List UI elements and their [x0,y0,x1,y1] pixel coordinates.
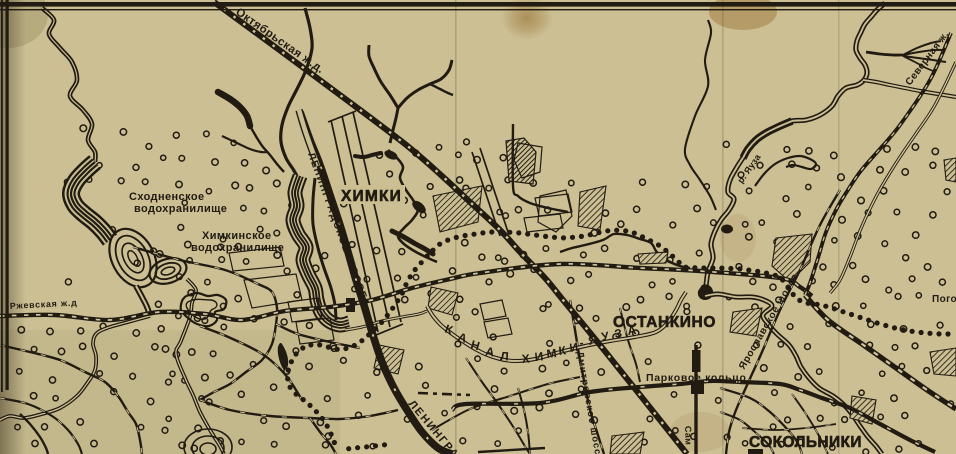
svg-text:водохранилище: водохранилище [134,203,227,215]
svg-text:Пого: Пого [932,294,956,305]
svg-text:водохранилище: водохранилище [191,242,284,254]
svg-text:Химкинское: Химкинское [202,230,271,242]
svg-text:ХИМКИ: ХИМКИ [341,188,402,205]
svg-text:Х: Х [521,351,530,366]
svg-text:Сходненское: Сходненское [129,191,204,203]
svg-text:Л: Л [500,349,509,364]
svg-text:И: И [534,349,544,364]
svg-text:Парковое кольцо: Парковое кольцо [646,372,747,384]
svg-text:И: И [569,340,579,355]
svg-text:Сам: Сам [683,426,694,446]
svg-text:СОКОЛЬНИКИ: СОКОЛЬНИКИ [749,434,862,451]
svg-text:М: М [546,346,557,361]
